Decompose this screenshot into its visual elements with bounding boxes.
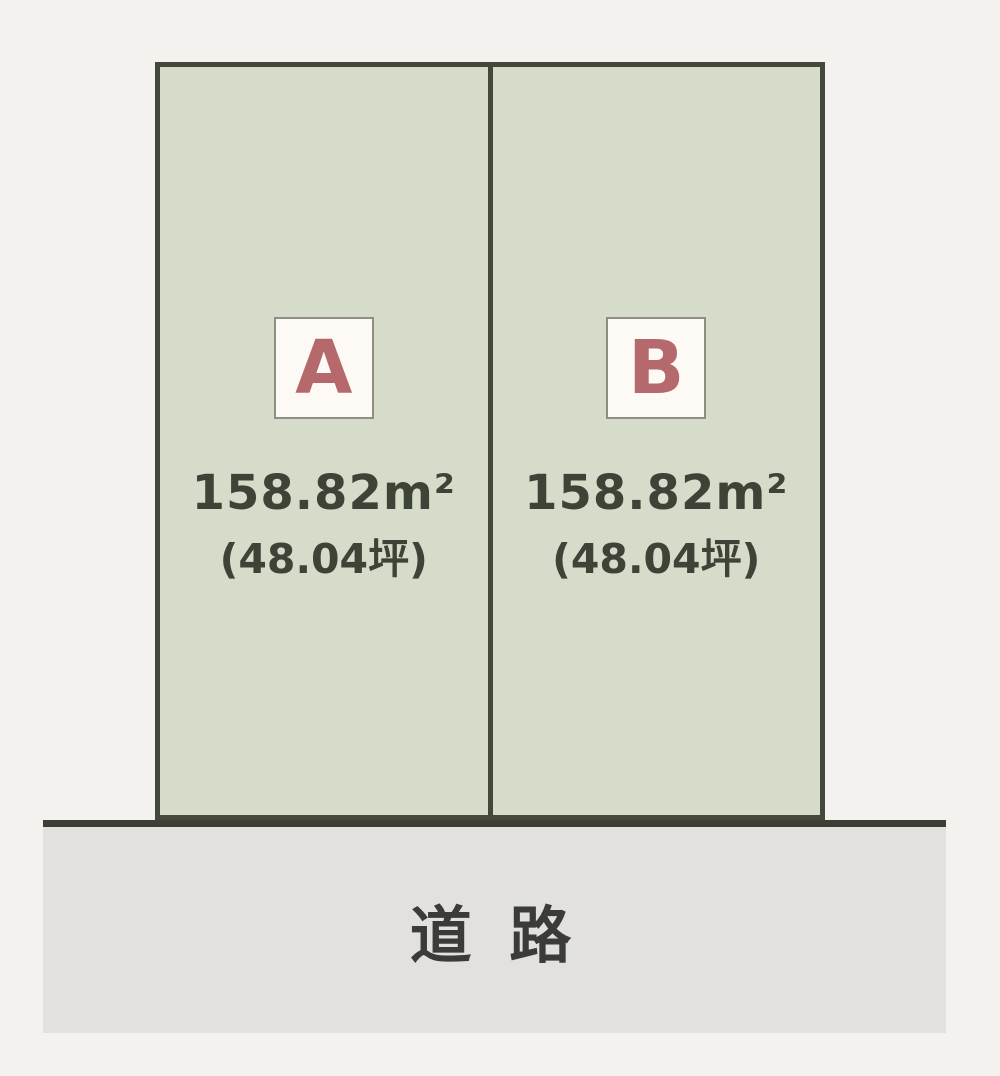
parcel-b-area-m2: 158.82m²: [524, 465, 788, 521]
parcel-b-area-tsubo: (48.04坪): [552, 525, 760, 585]
parcel-b: B 158.82m² (48.04坪): [493, 67, 821, 815]
parcel-a: A 158.82m² (48.04坪): [160, 67, 493, 815]
parcel-b-label: B: [628, 331, 684, 405]
parcel-a-area-m2: 158.82m²: [192, 465, 456, 521]
road-label: 道 路: [410, 885, 580, 975]
parcel-a-area-tsubo: (48.04坪): [220, 525, 428, 585]
parcel-a-label: A: [295, 331, 352, 405]
parcel-b-label-box: B: [606, 317, 706, 419]
land-parcel-block: A 158.82m² (48.04坪) B 158.82m² (48.04坪): [155, 62, 825, 820]
road-band: 道 路: [43, 820, 946, 1033]
parcel-map: A 158.82m² (48.04坪) B 158.82m² (48.04坪) …: [0, 0, 1000, 1076]
parcel-a-label-box: A: [274, 317, 374, 419]
